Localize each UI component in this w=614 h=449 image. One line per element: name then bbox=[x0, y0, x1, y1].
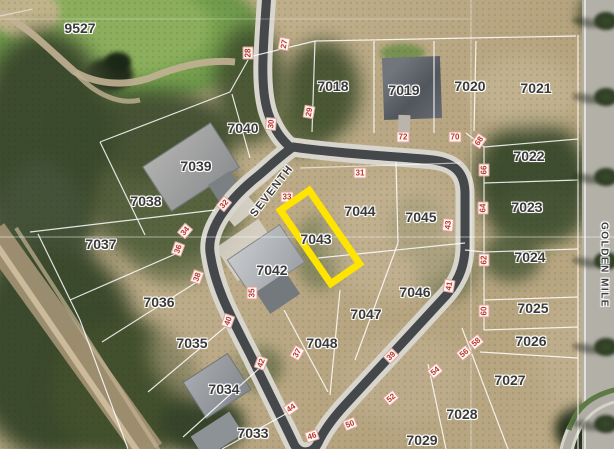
parcel-label-7028[interactable]: 7028 bbox=[446, 406, 477, 422]
parcel-label-7047[interactable]: 7047 bbox=[350, 306, 381, 322]
parcel-label-7043[interactable]: 7043 bbox=[300, 231, 331, 247]
parcel-label-7018[interactable]: 7018 bbox=[317, 78, 348, 94]
parcel-label-7020[interactable]: 7020 bbox=[454, 78, 485, 94]
parcel-label-7037[interactable]: 7037 bbox=[85, 236, 116, 252]
parcel-label-7042[interactable]: 7042 bbox=[256, 262, 287, 278]
parcel-labels-layer: 9527701870197020702170227023702470257026… bbox=[0, 0, 614, 449]
parcel-label-7046[interactable]: 7046 bbox=[399, 284, 430, 300]
parcel-label-9527[interactable]: 9527 bbox=[64, 20, 95, 36]
parcel-label-7022[interactable]: 7022 bbox=[513, 148, 544, 164]
parcel-label-7023[interactable]: 7023 bbox=[511, 199, 542, 215]
parcel-label-7024[interactable]: 7024 bbox=[514, 249, 545, 265]
parcel-label-7035[interactable]: 7035 bbox=[176, 335, 207, 351]
parcel-label-7034[interactable]: 7034 bbox=[208, 381, 239, 397]
parcel-label-7026[interactable]: 7026 bbox=[515, 333, 546, 349]
parcel-label-7027[interactable]: 7027 bbox=[494, 372, 525, 388]
parcel-label-7039[interactable]: 7039 bbox=[180, 158, 211, 174]
parcel-label-7029[interactable]: 7029 bbox=[406, 432, 437, 448]
map-canvas[interactable]: SEVENTH GOLDEN MILE 28272930323436384042… bbox=[0, 0, 614, 449]
parcel-label-7036[interactable]: 7036 bbox=[143, 294, 174, 310]
parcel-label-7045[interactable]: 7045 bbox=[405, 209, 436, 225]
parcel-label-7038[interactable]: 7038 bbox=[130, 193, 161, 209]
parcel-label-7044[interactable]: 7044 bbox=[344, 203, 375, 219]
parcel-label-7021[interactable]: 7021 bbox=[520, 80, 551, 96]
parcel-label-7040[interactable]: 7040 bbox=[227, 120, 258, 136]
parcel-label-7048[interactable]: 7048 bbox=[306, 335, 337, 351]
parcel-label-7033[interactable]: 7033 bbox=[237, 425, 268, 441]
parcel-label-7019[interactable]: 7019 bbox=[388, 82, 419, 98]
parcel-label-7025[interactable]: 7025 bbox=[517, 300, 548, 316]
